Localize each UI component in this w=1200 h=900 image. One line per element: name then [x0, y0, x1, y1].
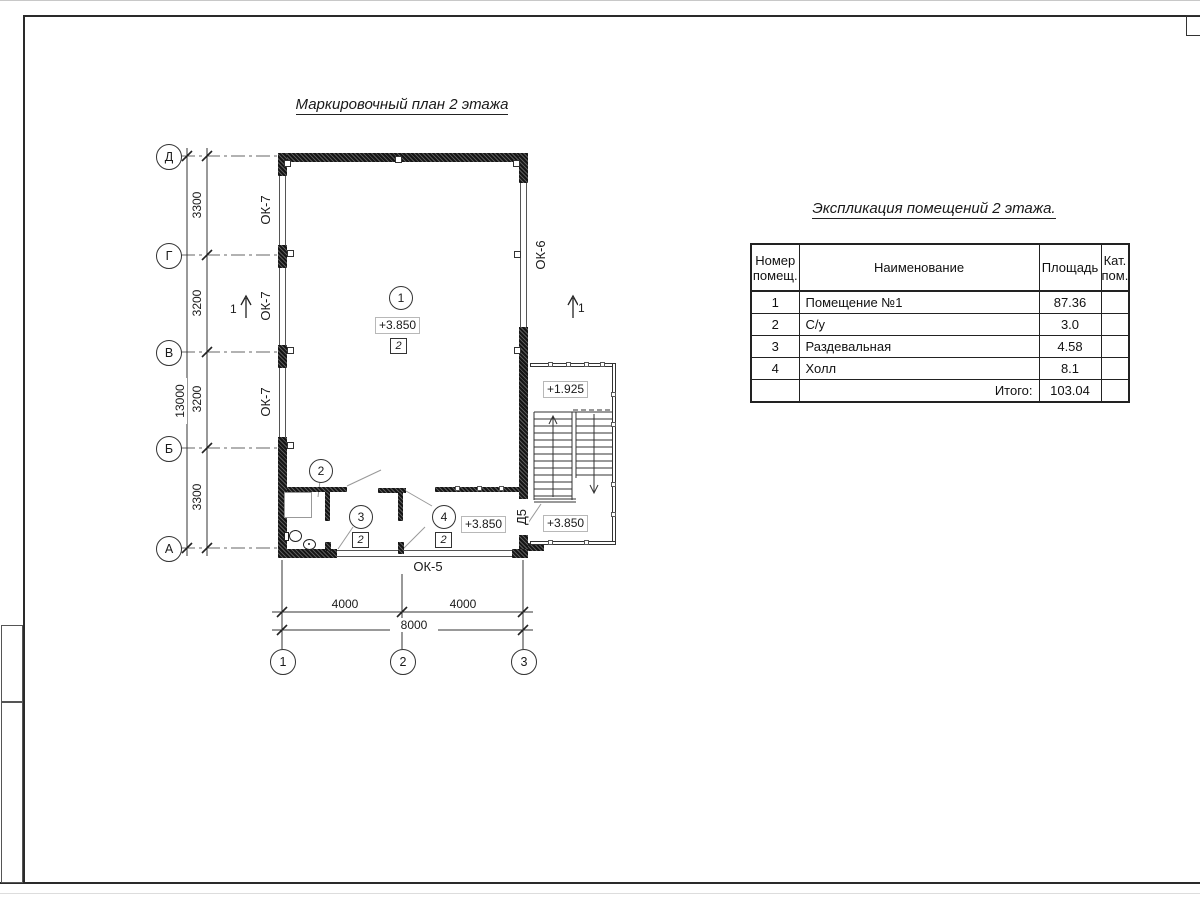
- table-row: 4 Холл 8.1: [751, 358, 1129, 380]
- dim-left-1: 3300: [190, 185, 204, 225]
- dim-left-3: 3200: [190, 379, 204, 419]
- axis-bubble-b: Б: [156, 436, 182, 462]
- partition-tick: [455, 486, 460, 491]
- axis-label: Г: [166, 249, 173, 263]
- dim-left-2: 3200: [190, 283, 204, 323]
- finish-number: 2: [440, 534, 446, 546]
- window-label-ok7-1: ОК-7: [259, 190, 273, 230]
- dim-bottom-1: 4000: [315, 597, 375, 611]
- annex-tick: [611, 422, 616, 427]
- window-label-ok7-3: ОК-7: [259, 382, 273, 422]
- header-cat: Кат. пом.: [1101, 244, 1129, 291]
- wall-mark: [287, 347, 294, 354]
- axis-label: 1: [280, 655, 287, 669]
- annex-tick: [611, 392, 616, 397]
- drawing-sheet: Маркировочный план 2 этажа Экспликация п…: [0, 0, 1200, 900]
- axis-bubble-a: А: [156, 536, 182, 562]
- wall-mark: [514, 251, 521, 258]
- annex-tick: [584, 540, 589, 545]
- partition-tick: [499, 486, 504, 491]
- table-row: 2 С/у 3.0: [751, 314, 1129, 336]
- annex-tick: [548, 362, 553, 367]
- total-label: Итого:: [799, 380, 1039, 403]
- axis-label: 2: [400, 655, 407, 669]
- partition-su-right: [325, 492, 330, 521]
- axis-bubble-2: 2: [390, 649, 416, 675]
- window-ok7-3: [279, 368, 286, 437]
- window-label-ok6: ОК-6: [534, 235, 548, 275]
- finish-mark-room4: 2: [435, 532, 452, 548]
- cell-num: 4: [751, 358, 799, 380]
- elevation-hall: +3.850: [461, 516, 506, 533]
- cell-num: 1: [751, 291, 799, 314]
- door-jamb-2: [398, 542, 404, 554]
- finish-mark-room1: 2: [390, 338, 407, 354]
- elevation-stair-landing: +1.925: [543, 381, 588, 398]
- cell-num: 2: [751, 314, 799, 336]
- window-label-ok5: ОК-5: [398, 560, 458, 574]
- wall-mark: [287, 442, 294, 449]
- axis-label: 3: [521, 655, 528, 669]
- dim-bottom-2: 4000: [433, 597, 493, 611]
- wall-mark: [513, 160, 520, 167]
- window-ok6: [520, 183, 527, 327]
- header-num: Номер помещ.: [751, 244, 799, 291]
- cell-cat: [1101, 336, 1129, 358]
- cell-name: С/у: [799, 314, 1039, 336]
- axis-bubble-g: Г: [156, 243, 182, 269]
- dimension-lines: [187, 148, 533, 649]
- room-number: 2: [318, 464, 325, 478]
- elevation-room1: +3.850: [375, 317, 420, 334]
- explication-table: Номер помещ. Наименование Площадь Кат. п…: [750, 243, 1130, 403]
- section-label-left: 1: [230, 302, 237, 316]
- sink-dot: [308, 543, 310, 545]
- cell-name: Холл: [799, 358, 1039, 380]
- wall-left-pier-g: [278, 245, 287, 268]
- wall-bottom-right-corner: [512, 549, 528, 558]
- axis-bubble-d: Д: [156, 144, 182, 170]
- annex-tick: [611, 482, 616, 487]
- stair-linework: [534, 410, 614, 502]
- room-marker-2: 2: [309, 459, 333, 483]
- cell-area: 4.58: [1039, 336, 1101, 358]
- table-row: 1 Помещение №1 87.36: [751, 291, 1129, 314]
- dim-left-total: 13000: [173, 378, 187, 424]
- window-ok5: [337, 550, 512, 557]
- total-value: 103.04: [1039, 380, 1101, 403]
- axis-bubble-v: В: [156, 340, 182, 366]
- door-label-d5: Д5: [515, 499, 529, 535]
- cell-num: 3: [751, 336, 799, 358]
- header-area: Площадь: [1039, 244, 1101, 291]
- wall-mark: [284, 160, 291, 167]
- wall-mark: [287, 250, 294, 257]
- axis-label: А: [165, 542, 173, 556]
- finish-number: 2: [395, 340, 401, 352]
- room-number: 3: [358, 510, 365, 524]
- door-jamb-1: [325, 542, 331, 551]
- wall-top: [278, 153, 528, 162]
- axis-label: Б: [165, 442, 173, 456]
- annex-tick: [600, 362, 605, 367]
- partition-tick: [477, 486, 482, 491]
- axis-label: В: [165, 346, 173, 360]
- annex-wall-right: [612, 363, 616, 545]
- cell-area: 3.0: [1039, 314, 1101, 336]
- room-marker-1: 1: [389, 286, 413, 310]
- shower-tray: [284, 492, 312, 518]
- wall-mark: [395, 156, 402, 163]
- elevation-stair-lower: +3.850: [543, 515, 588, 532]
- table-total-row: Итого: 103.04: [751, 380, 1129, 403]
- annex-tick: [566, 362, 571, 367]
- header-name: Наименование: [799, 244, 1039, 291]
- annex-tick: [584, 362, 589, 367]
- window-label-ok7-2: ОК-7: [259, 286, 273, 326]
- room-number: 4: [441, 510, 448, 524]
- section-label-right: 1: [578, 301, 585, 315]
- cell-cat: [1101, 358, 1129, 380]
- axis-bubble-3: 3: [511, 649, 537, 675]
- cell-cat: [1101, 291, 1129, 314]
- annex-wall-bottom: [530, 541, 616, 545]
- window-ok7-1: [279, 176, 286, 245]
- dim-bottom-total: 8000: [390, 618, 438, 632]
- room-marker-3: 3: [349, 505, 373, 529]
- cell-cat: [1101, 314, 1129, 336]
- cell-empty: [1101, 380, 1129, 403]
- wall-mark: [514, 347, 521, 354]
- annex-tick: [548, 540, 553, 545]
- finish-mark-room3: 2: [352, 532, 369, 548]
- annex-tick: [611, 512, 616, 517]
- cell-name: Раздевальная: [799, 336, 1039, 358]
- partition-room3-right: [398, 492, 403, 521]
- cell-area: 8.1: [1039, 358, 1101, 380]
- dim-left-4: 3300: [190, 477, 204, 517]
- finish-number: 2: [357, 534, 363, 546]
- cell-name: Помещение №1: [799, 291, 1039, 314]
- cell-empty: [751, 380, 799, 403]
- toilet-bowl: [289, 530, 302, 542]
- room-marker-4: 4: [432, 505, 456, 529]
- room-number: 1: [398, 291, 405, 305]
- axis-label: Д: [165, 150, 173, 164]
- window-ok7-2: [279, 268, 286, 345]
- table-header-row: Номер помещ. Наименование Площадь Кат. п…: [751, 244, 1129, 291]
- wall-left-pier-v: [278, 345, 287, 368]
- axis-bubble-1: 1: [270, 649, 296, 675]
- cell-area: 87.36: [1039, 291, 1101, 314]
- table-row: 3 Раздевальная 4.58: [751, 336, 1129, 358]
- dimension-ticks: [182, 151, 528, 635]
- wall-right-top: [519, 153, 528, 183]
